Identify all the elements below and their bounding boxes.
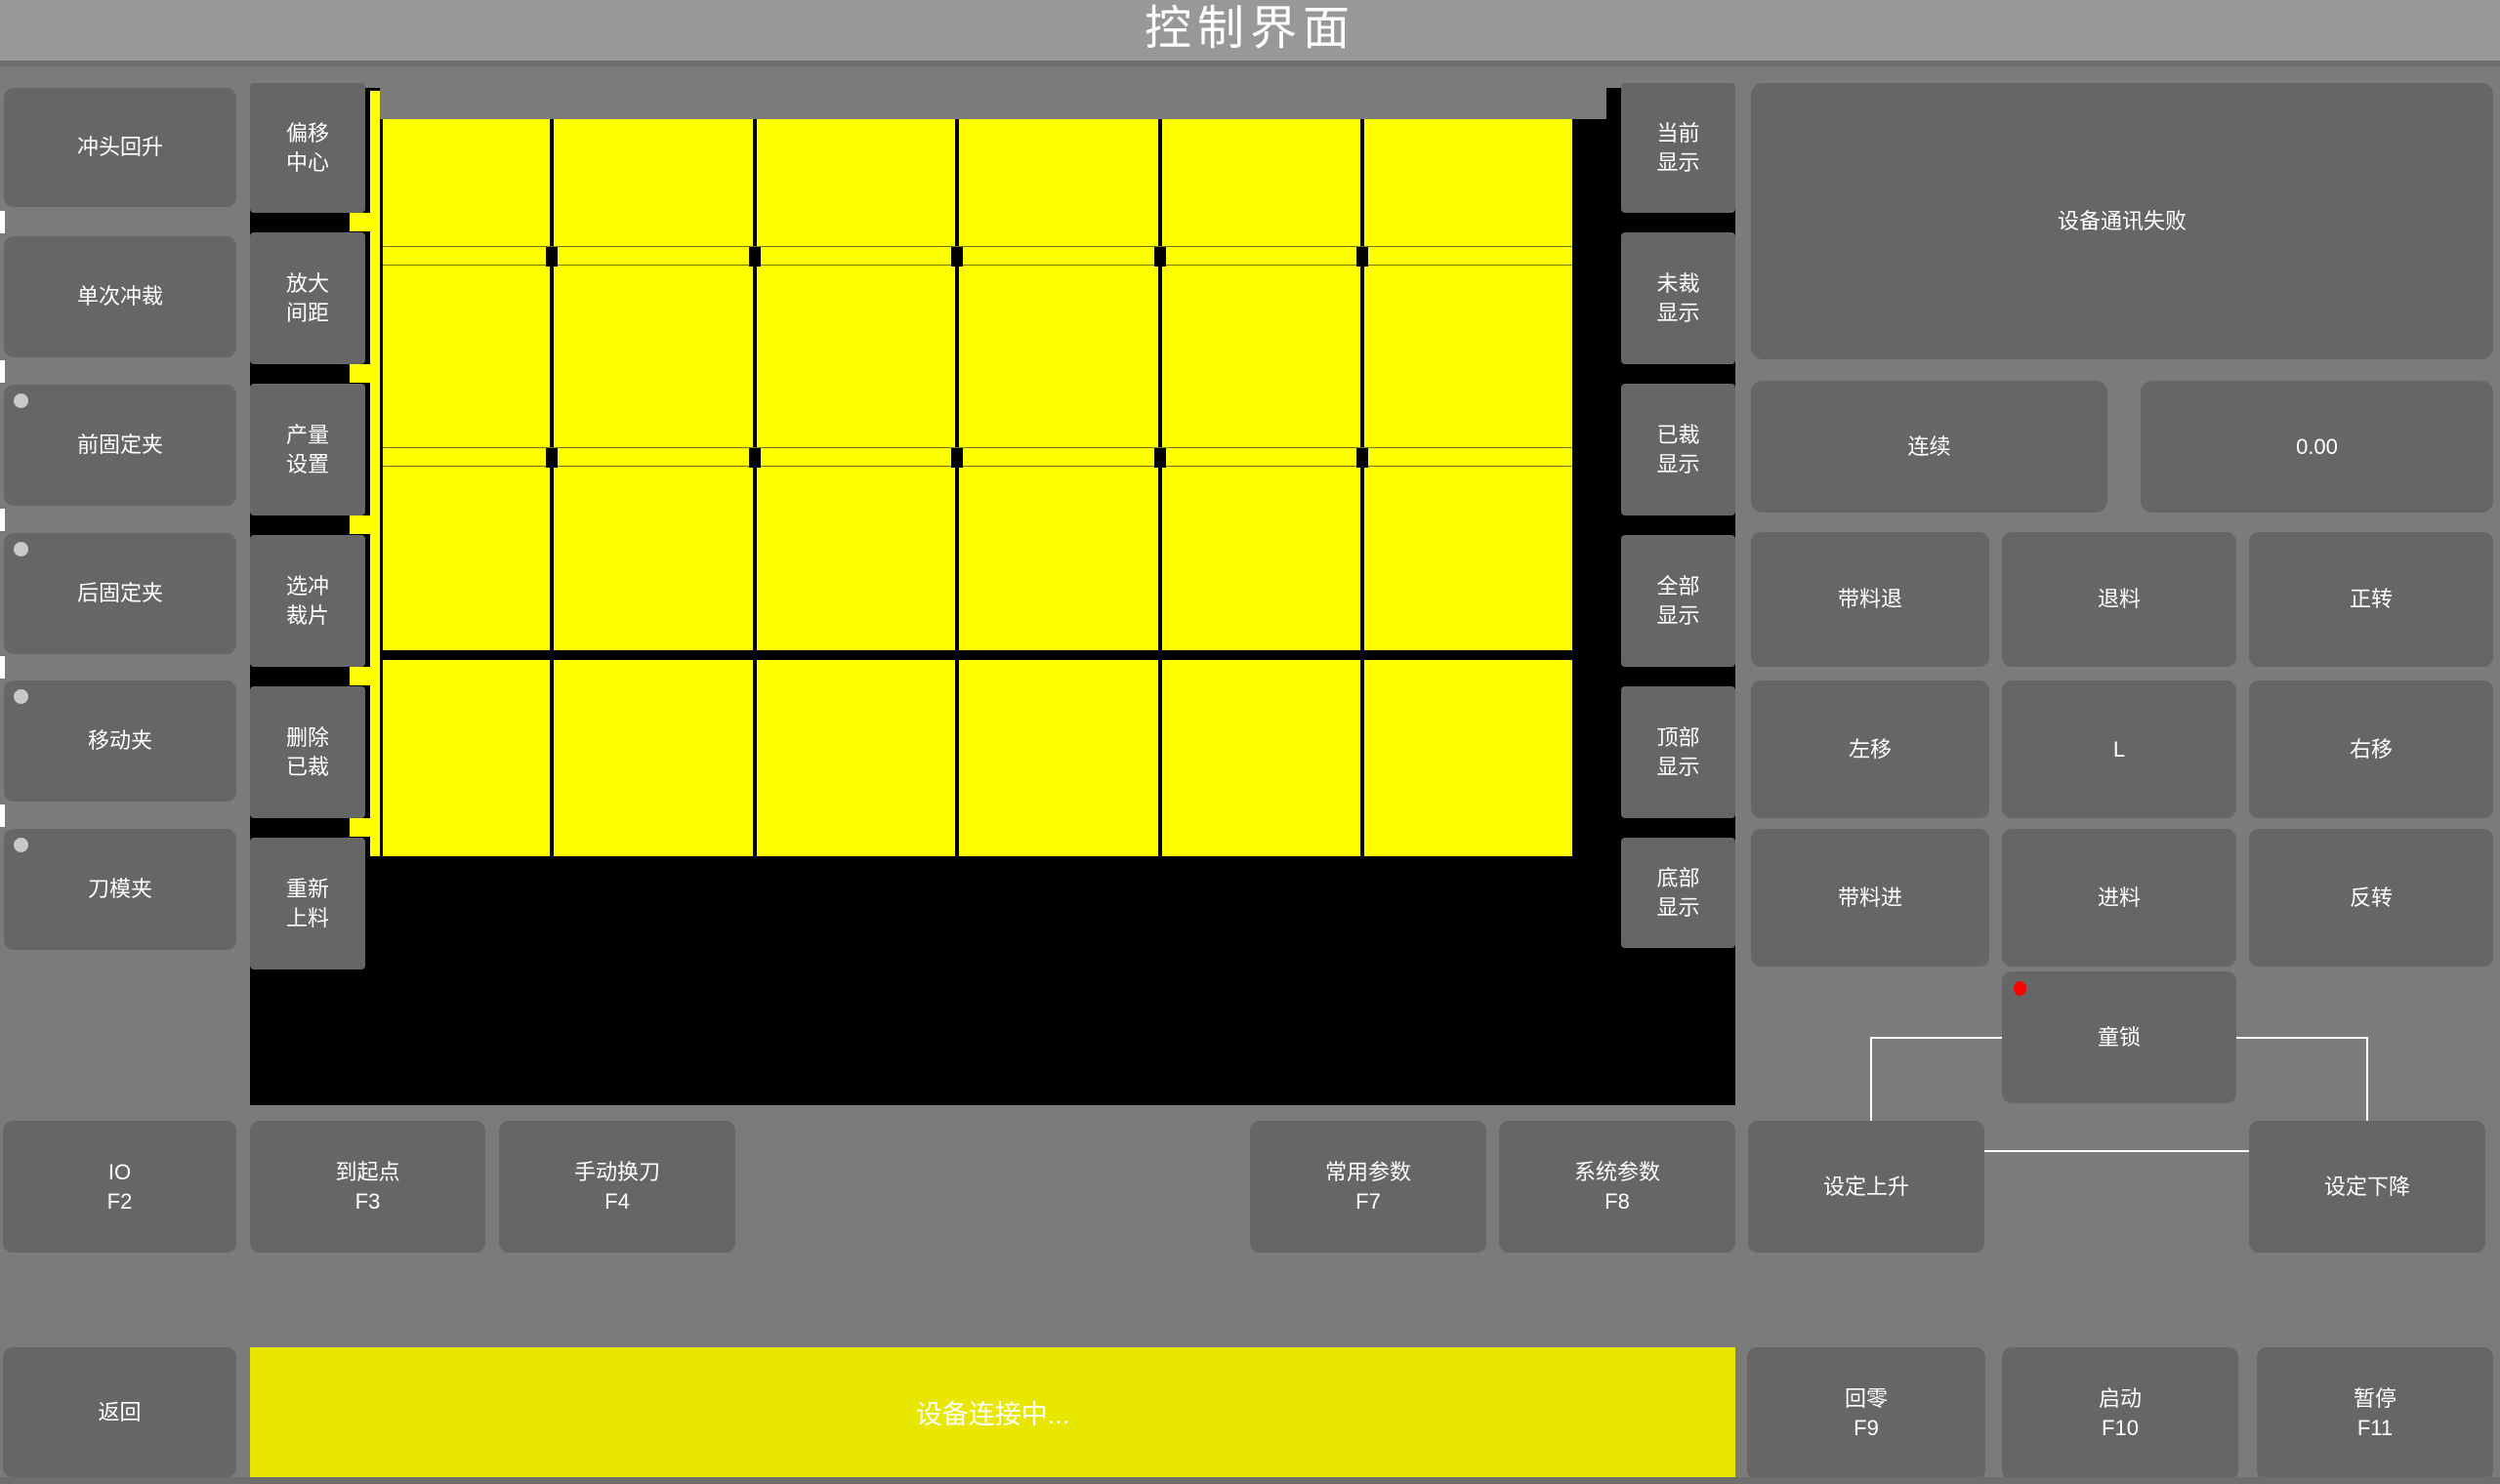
edge-mark	[0, 656, 5, 679]
button-move-right[interactable]: 右移	[2249, 680, 2493, 818]
edge-mark	[0, 804, 5, 827]
cut-notch	[546, 247, 558, 267]
button-offset-center[interactable]: 偏移中心	[250, 83, 365, 213]
material-sheet	[383, 119, 1572, 856]
material-tab	[350, 364, 371, 383]
cut-line-horizontal	[383, 246, 1572, 266]
cut-notch	[951, 247, 963, 267]
button-unload[interactable]: 退料	[2002, 532, 2236, 667]
button-show-bottom[interactable]: 底部显示	[1621, 838, 1735, 948]
button-punch-return[interactable]: 冲头回升	[4, 88, 236, 207]
button-select-pieces[interactable]: 选冲裁片	[250, 535, 365, 667]
button-yield-settings[interactable]: 产量设置	[250, 384, 365, 515]
button-material-forward[interactable]: 带料进	[1751, 829, 1989, 967]
alert-red-dot	[2014, 981, 2026, 996]
status-indicator-dot	[14, 542, 28, 556]
cut-notch	[749, 448, 761, 468]
button-front-clamp[interactable]: 前固定夹	[4, 385, 236, 506]
cut-notch	[546, 448, 558, 468]
material-tab	[350, 818, 371, 837]
button-go-origin-f3[interactable]: 到起点F3	[250, 1121, 485, 1253]
button-show-current[interactable]: 当前显示	[1621, 83, 1735, 213]
cut-line-horizontal	[383, 447, 1572, 467]
title-bar-underline	[0, 61, 2500, 66]
edge-mark	[0, 211, 5, 233]
edge-mark	[0, 360, 5, 383]
button-system-params-f8[interactable]: 系统参数F8	[1499, 1121, 1735, 1253]
button-reverse-rotate[interactable]: 反转	[2249, 829, 2493, 967]
button-die-clamp[interactable]: 刀模夹	[4, 829, 236, 950]
material-edge-strip	[370, 91, 380, 856]
edge-mark	[0, 509, 5, 531]
cut-notch	[1356, 448, 1368, 468]
status-indicator-dot	[14, 689, 28, 704]
button-forward-rotate[interactable]: 正转	[2249, 532, 2493, 667]
page-title: 控制界面	[0, 0, 2500, 61]
button-set-rise[interactable]: 设定上升	[1748, 1121, 1984, 1253]
button-single-punch[interactable]: 单次冲裁	[4, 236, 236, 357]
button-manual-tool-change-f4[interactable]: 手动换刀F4	[499, 1121, 735, 1253]
button-moving-clamp[interactable]: 移动夹	[4, 680, 236, 802]
button-home-f9[interactable]: 回零F9	[1747, 1347, 1985, 1480]
button-load[interactable]: 进料	[2002, 829, 2236, 967]
cut-line-horizontal-solid	[383, 650, 1572, 660]
material-preview-canvas[interactable]	[250, 88, 1735, 1105]
cut-line-vertical	[753, 119, 757, 856]
cut-line-vertical	[1158, 119, 1162, 856]
comm-status-panel: 设备通讯失败	[1751, 83, 2493, 359]
button-io-f2[interactable]: IOF2	[3, 1121, 236, 1253]
material-tab	[350, 213, 371, 231]
status-indicator-dot	[14, 393, 28, 408]
value-display: 0.00	[2141, 381, 2493, 513]
button-delete-cut[interactable]: 删除已裁	[250, 686, 365, 818]
button-move-left[interactable]: 左移	[1751, 680, 1989, 818]
button-l[interactable]: L	[2002, 680, 2236, 818]
button-show-all[interactable]: 全部显示	[1621, 535, 1735, 667]
material-tab	[350, 667, 371, 685]
button-material-back[interactable]: 带料退	[1751, 532, 1989, 667]
button-start-f10[interactable]: 启动F10	[2002, 1347, 2238, 1480]
cut-notch	[1154, 448, 1166, 468]
material-tab	[350, 515, 371, 534]
status-indicator-dot	[14, 838, 28, 852]
button-show-uncut[interactable]: 未裁显示	[1621, 232, 1735, 364]
button-continuous-mode[interactable]: 连续	[1751, 381, 2107, 513]
button-set-fall[interactable]: 设定下降	[2249, 1121, 2485, 1253]
button-common-params-f7[interactable]: 常用参数F7	[1250, 1121, 1486, 1253]
cut-line-vertical	[955, 119, 959, 856]
cut-notch	[1154, 247, 1166, 267]
button-child-lock[interactable]: 童锁	[2002, 971, 2236, 1103]
bottom-edge-strip	[0, 1477, 2500, 1484]
canvas-top-band	[380, 88, 1606, 119]
button-enlarge-spacing[interactable]: 放大间距	[250, 232, 365, 364]
button-rear-clamp[interactable]: 后固定夹	[4, 533, 236, 654]
cut-line-vertical	[550, 119, 554, 856]
button-pause-f11[interactable]: 暂停F11	[2257, 1347, 2493, 1480]
connection-status-bar: 设备连接中...	[250, 1347, 1735, 1477]
button-reload-material[interactable]: 重新上料	[250, 838, 365, 969]
cut-line-vertical	[1360, 119, 1364, 856]
button-show-cut[interactable]: 已裁显示	[1621, 384, 1735, 515]
cut-notch	[1356, 247, 1368, 267]
cut-notch	[951, 448, 963, 468]
button-show-top[interactable]: 顶部显示	[1621, 686, 1735, 818]
cut-notch	[749, 247, 761, 267]
button-back[interactable]: 返回	[3, 1347, 236, 1477]
